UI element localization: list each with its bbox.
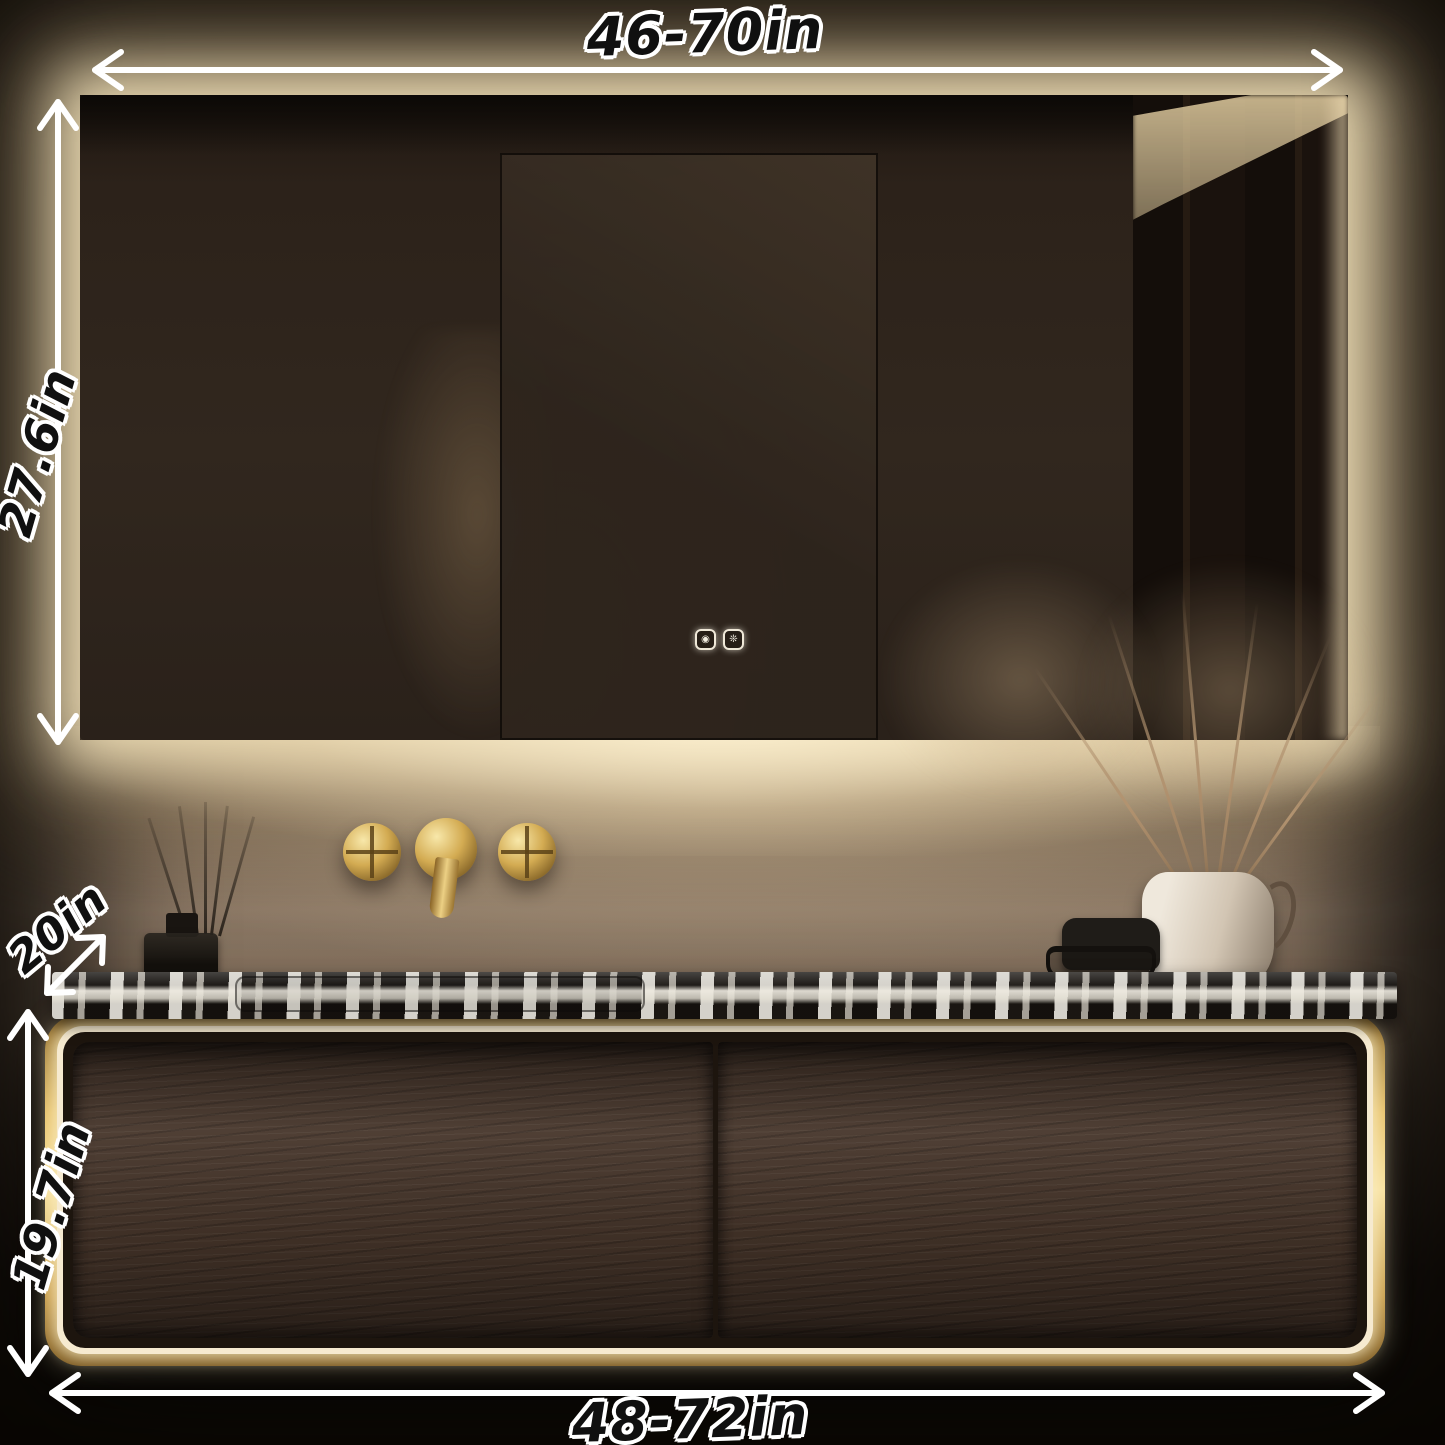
product-photo-bathroom-vanity-mirror: ◉ ❊ [0,0,1445,1445]
faucet-left-handle [343,823,401,881]
defog-button-icon: ❊ [723,629,744,650]
vanity-gold-frame [45,1014,1385,1366]
diffuser-stick [204,802,207,934]
vanity-drawer-right [718,1042,1358,1338]
cabinet-width-label: 48-72in [529,1382,851,1445]
mirror-reflection-ceiling-light [1133,95,1348,355]
vanity-body [63,1032,1367,1348]
mirror-reflection-door [500,153,878,740]
faucet-right-handle [498,823,556,881]
sink-basin [235,976,645,1012]
light-button-icon: ◉ [695,629,716,650]
vanity-drawer-left [73,1042,713,1338]
vanity-led-strip [57,1026,1373,1354]
mirror-touch-controls: ◉ ❊ [695,629,744,650]
mirror-width-label: 46-70in [554,0,856,70]
